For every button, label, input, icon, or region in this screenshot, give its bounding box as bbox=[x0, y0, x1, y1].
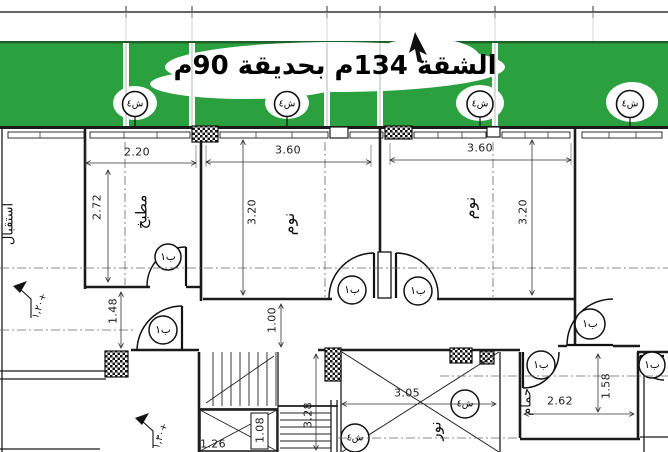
door-tag: ب١ bbox=[644, 360, 660, 371]
dim-bedroom2-depth: 3.20 bbox=[518, 199, 529, 225]
window-tag: ش٤ bbox=[279, 99, 296, 109]
window-tag: ش٤ bbox=[472, 99, 489, 109]
door-tag: ب١ bbox=[344, 285, 360, 296]
dim-bedroom1-depth: 3.20 bbox=[247, 199, 258, 225]
door-tag: ب١ bbox=[160, 252, 176, 263]
door-tag: ب١ bbox=[155, 325, 171, 336]
dim-kitchen-depth: 2.72 bbox=[92, 194, 103, 220]
horizontal-walls bbox=[85, 287, 668, 439]
window-tag: ش٤ bbox=[127, 99, 144, 109]
dim-kitchen-width: 2.20 bbox=[124, 147, 150, 158]
dim-bedroom2-width: 3.60 bbox=[467, 143, 493, 154]
door-tag: ب١ bbox=[410, 286, 426, 297]
window-tag: ش٤ bbox=[622, 99, 639, 109]
window-tag: ش٤ bbox=[457, 399, 474, 409]
top-boundary-line bbox=[0, 6, 668, 41]
window-tag: ش٤ bbox=[347, 433, 364, 443]
dim-shaft-width: 1.08 bbox=[255, 417, 266, 443]
bedroom1-label: نوم bbox=[281, 213, 297, 236]
kitchen-label: مطبخ bbox=[135, 195, 150, 230]
door-tag: ب١ bbox=[582, 319, 598, 330]
dim-bathroom-depth: 1.58 bbox=[601, 373, 612, 399]
dim-stair-width: 1.26 bbox=[200, 439, 226, 450]
dim-lightwell-depth: 3.28 bbox=[303, 402, 314, 428]
dim-bedroom1-width: 3.60 bbox=[275, 145, 301, 156]
door-jamb-stub bbox=[378, 252, 391, 298]
stair-flight-upper bbox=[206, 352, 276, 406]
plan-title: الشقة 134م بحديقة 90م bbox=[173, 53, 496, 79]
door-tag: ب١ bbox=[533, 360, 549, 371]
floor-plan-page: الشقة 134م بحديقة 90م استقبال مطبخ نوم ن… bbox=[0, 0, 668, 452]
bedroom2-label: نوم bbox=[462, 197, 478, 220]
dim-corridor-width: 1.00 bbox=[267, 307, 278, 333]
dim-bathroom-width: 2.62 bbox=[547, 396, 573, 407]
dim-lightwell-width: 3.05 bbox=[394, 388, 420, 399]
tag-circles bbox=[149, 244, 665, 452]
dim-hall-width: 1.48 bbox=[108, 298, 119, 324]
bathroom-label: حمام bbox=[521, 388, 534, 416]
reception-label: استقبال bbox=[3, 203, 16, 245]
lightwell-label: نور bbox=[429, 421, 444, 440]
